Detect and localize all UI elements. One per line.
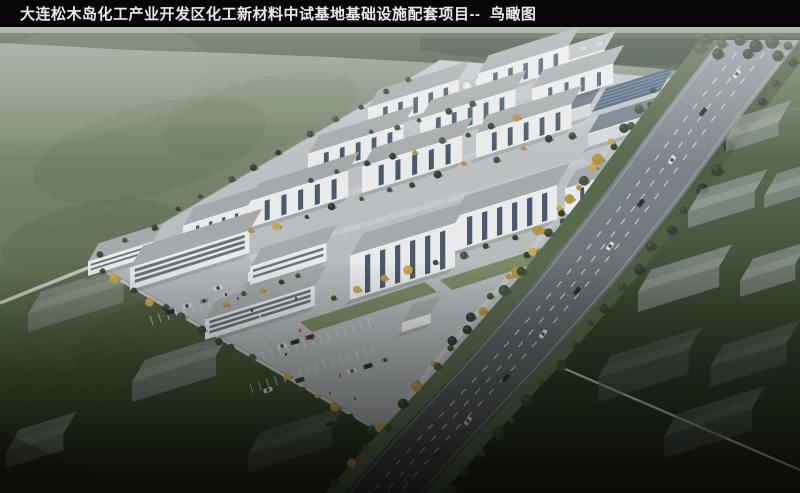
title-bar: 大连松木岛化工产业开发区化工新材料中试基地基础设施配套项目-- 鸟瞰图 bbox=[0, 0, 800, 27]
screenshot: 大连松木岛化工产业开发区化工新材料中试基地基础设施配套项目-- 鸟瞰图 bbox=[0, 0, 800, 493]
haze-vignette bbox=[0, 27, 800, 493]
aerial-rendering bbox=[0, 27, 800, 493]
page-title: 大连松木岛化工产业开发区化工新材料中试基地基础设施配套项目-- 鸟瞰图 bbox=[0, 3, 536, 24]
